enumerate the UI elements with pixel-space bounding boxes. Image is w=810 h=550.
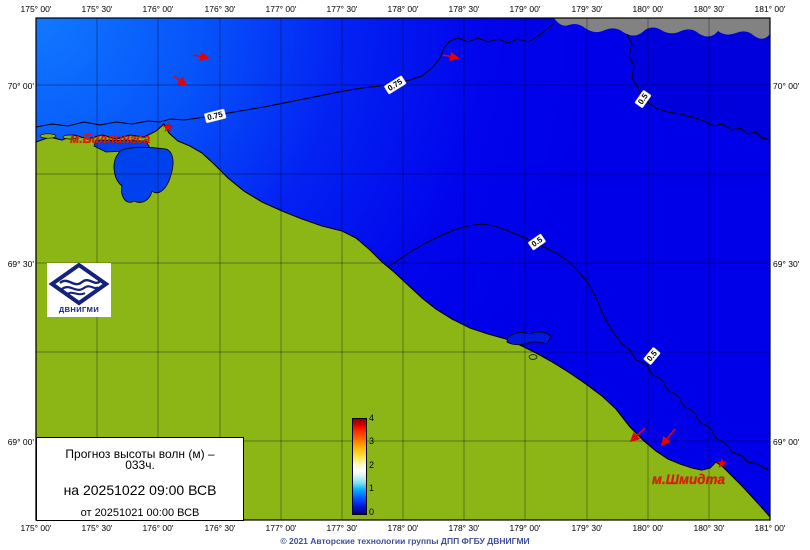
lat-tick: 70° 00': [773, 81, 799, 91]
lon-tick: 180° 00': [625, 4, 671, 14]
lon-tick: 178° 00': [380, 4, 426, 14]
lon-tick: 178° 00': [380, 523, 426, 533]
lon-tick: 177° 30': [319, 523, 365, 533]
colorbar-tick: 2: [369, 460, 374, 470]
small-island: [529, 355, 537, 360]
lon-tick: 179° 00': [502, 523, 548, 533]
lat-tick: 69° 30': [773, 259, 799, 269]
colorbar-tick: 1: [369, 483, 374, 493]
forecast-info-box: Прогноз высоты волн (м) – 033ч. на 20251…: [36, 437, 244, 521]
lon-tick: 175° 30': [74, 4, 120, 14]
bay-inlet: [507, 332, 551, 345]
wave-forecast-map-page: 175° 00' 175° 30' 176° 00' 176° 30' 177°…: [0, 0, 810, 550]
lat-tick: 69° 30': [1, 259, 34, 269]
lon-tick: 175° 00': [13, 4, 59, 14]
lon-tick: 177° 00': [258, 523, 304, 533]
barrier-island: [40, 134, 56, 138]
lon-tick: 180° 30': [686, 523, 732, 533]
lon-tick: 178° 30': [441, 523, 487, 533]
lon-tick: 181° 00': [747, 4, 793, 14]
lon-tick: 176° 30': [197, 523, 243, 533]
colorbar-tick: 3: [369, 436, 374, 446]
lon-tick: 179° 00': [502, 4, 548, 14]
lon-tick: 177° 30': [319, 4, 365, 14]
lon-tick: 179° 30': [564, 4, 610, 14]
forecast-valid-time: на 20251022 09:00 ВСВ: [37, 482, 243, 498]
cape-billings-label: м.Биллингса: [70, 132, 150, 146]
lon-tick: 180° 00': [625, 523, 671, 533]
lon-tick: 179° 30': [564, 523, 610, 533]
logo-name: ДВНИГМИ: [47, 305, 111, 314]
cape-shmidt-label: м.Шмидта: [652, 472, 725, 487]
lon-tick: 176° 00': [135, 523, 181, 533]
lon-tick: 175° 30': [74, 523, 120, 533]
forecast-issue-time: от 20251021 00:00 ВСВ: [37, 507, 243, 519]
lat-tick: 69° 00': [773, 437, 799, 447]
lon-tick: 178° 30': [441, 4, 487, 14]
lon-tick: 181° 00': [747, 523, 793, 533]
colorbar-tick: 0: [369, 507, 374, 517]
lon-tick: 176° 30': [197, 4, 243, 14]
dvnigmi-logo: ДВНИГМИ: [47, 263, 111, 317]
wave-height-colorbar: [352, 418, 367, 515]
copyright-text: © 2021 Авторские технологии группы ДПП Ф…: [0, 536, 810, 546]
lat-tick: 69° 00': [1, 437, 34, 447]
lon-tick: 176° 00': [135, 4, 181, 14]
lon-tick: 175° 00': [13, 523, 59, 533]
lon-tick: 177° 00': [258, 4, 304, 14]
lat-tick: 70° 00': [1, 81, 34, 91]
lon-tick: 180° 30': [686, 4, 732, 14]
colorbar-tick: 4: [369, 413, 374, 423]
cape-billings-star-icon: ★: [162, 121, 174, 134]
cape-shmidt-star-icon: ★: [716, 457, 728, 470]
